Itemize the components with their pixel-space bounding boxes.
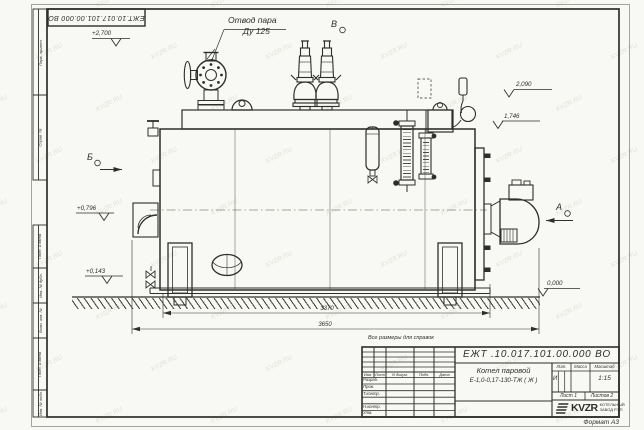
format-label: Формат А3 <box>575 420 619 427</box>
frame-cell-podp-data-2: Подп. и дата <box>33 338 47 390</box>
frame-cell-sprav-no: Справ. № <box>33 95 47 180</box>
elevation-mid-right: 1,746 <box>504 114 519 120</box>
row-razrab: Разраб. <box>363 378 378 382</box>
mass-header: Масса <box>571 365 590 369</box>
elevation-ground: 0,000 <box>547 281 562 287</box>
top-designation-text: ЕЖТ.10.017.101.00.000 ВО <box>48 14 145 21</box>
drawing-sheet: ЕЖТ.10.017.101.00.000 ВО Перв. примен. С… <box>0 0 644 430</box>
row-nkontr: Н.контр. <box>363 405 381 409</box>
lit-header: Лит. <box>552 365 571 369</box>
elevation-top: +2,700 <box>92 31 111 37</box>
kvzr-logo-icon <box>556 402 569 414</box>
logo-text: KVZR <box>571 402 598 414</box>
steam-outlet-callout-line2: Ду 125 <box>243 27 270 36</box>
dimension-overall-length: 3650 <box>310 322 340 328</box>
elevation-left-low: +0,143 <box>86 269 105 275</box>
col-header-doc: N докум. <box>386 373 414 377</box>
frame-cell-perv-primen: Перв. примен. <box>33 9 47 95</box>
title-designation: ЕЖТ .10.017.101.00.000 ВО <box>457 350 617 360</box>
top-designation-box: ЕЖТ.10.017.101.00.000 ВО <box>48 9 145 26</box>
frame-cell-vzam-inv: Взам. инв. № <box>33 303 47 338</box>
view-label-a: А <box>556 203 562 212</box>
view-label-b: Б <box>87 153 93 162</box>
view-label-v: В <box>331 20 337 29</box>
product-name-line1: Котел паровой <box>455 367 552 375</box>
product-name-line2: Е-1,0-0,17-130-ТЖ ( Ж ) <box>455 378 552 384</box>
row-tkontr: Т.контр. <box>363 392 380 396</box>
frame-cell-inv-podl: Инв. № подл. <box>33 390 47 417</box>
elevation-left-mid: +0,796 <box>77 206 96 212</box>
row-utv: Утв. <box>363 411 373 415</box>
frame-cell-podp-data-1: Подп. и дата <box>33 225 47 268</box>
steam-outlet-callout-line1: Отвод пара <box>228 16 277 25</box>
col-header-data: Дата <box>434 373 455 377</box>
col-header-podp: Подп. <box>414 373 434 377</box>
col-header-izm: Изм. <box>362 373 374 377</box>
company-logo: KVZR КОТЕЛЬНЫЙ ЗАВОД РЭП <box>556 402 625 414</box>
logo-subtext: КОТЕЛЬНЫЙ ЗАВОД РЭП <box>600 403 625 412</box>
lit-value: И <box>552 376 558 382</box>
sheets-cell: Листов 2 <box>585 394 619 399</box>
scale-value: 1:15 <box>590 376 619 383</box>
sheet-cell: Лист 1 <box>552 394 585 399</box>
elevation-upper-right: 2,090 <box>516 82 531 88</box>
reference-note: Все размеры для справок <box>368 336 434 342</box>
row-prov: Пров. <box>363 385 374 389</box>
dimension-shell-length: 3370 <box>312 306 342 312</box>
frame-cell-inv-dubl: Инв. № дубл. <box>33 268 47 303</box>
col-header-list: Лист <box>374 373 386 377</box>
scale-header: Масштаб <box>590 365 619 369</box>
